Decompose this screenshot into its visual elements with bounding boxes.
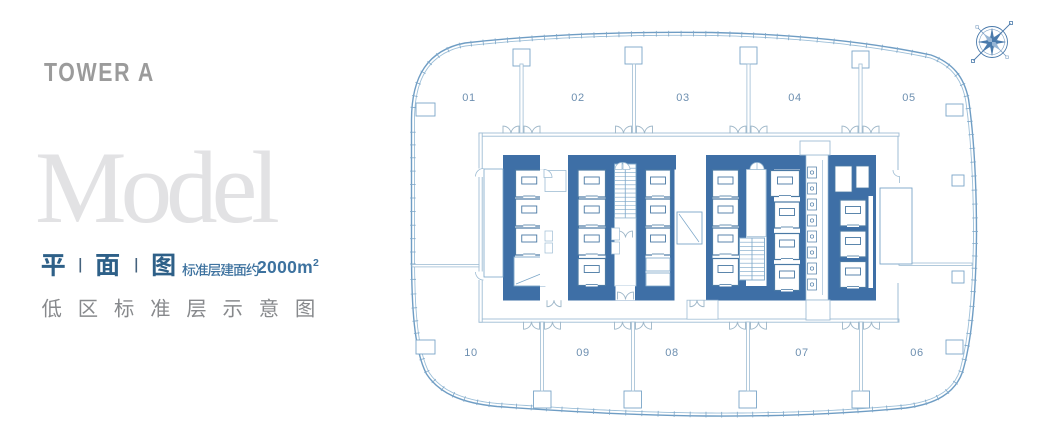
svg-text:08: 08 (665, 347, 678, 359)
svg-text:02: 02 (571, 92, 584, 104)
svg-text:07: 07 (795, 347, 808, 359)
svg-text:09: 09 (576, 347, 589, 359)
svg-text:04: 04 (788, 92, 801, 104)
svg-text:03: 03 (676, 92, 689, 104)
svg-text:10: 10 (464, 347, 477, 359)
svg-text:05: 05 (902, 92, 915, 104)
svg-text:01: 01 (462, 92, 475, 104)
svg-text:06: 06 (910, 347, 923, 359)
